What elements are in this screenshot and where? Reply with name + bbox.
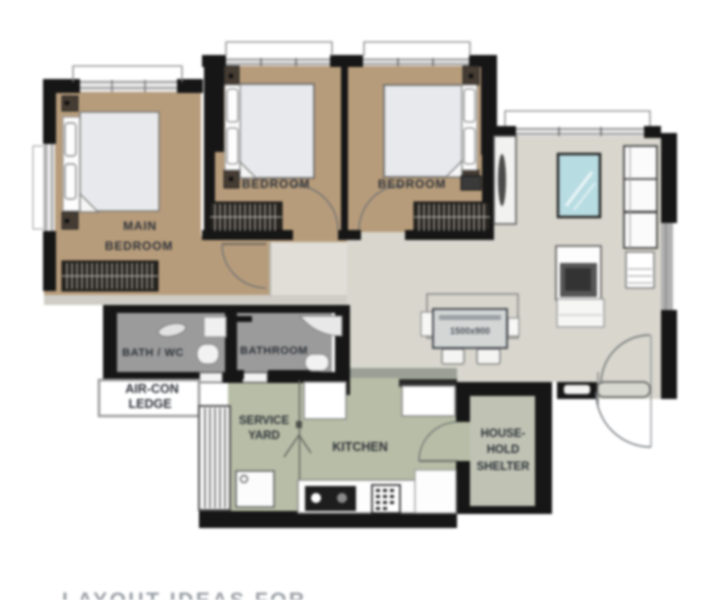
svg-text:MAIN: MAIN [123,219,157,233]
svg-text:BEDROOM: BEDROOM [105,239,173,253]
svg-text:HOLD: HOLD [487,444,520,456]
svg-text:1500x900: 1500x900 [450,326,490,336]
svg-text:LAYOUT IDEAS FOR: LAYOUT IDEAS FOR [62,589,307,600]
svg-text:HOUSE-: HOUSE- [481,428,526,440]
svg-text:AIR-CON: AIR-CON [125,382,178,396]
svg-text:SERVICE: SERVICE [239,415,290,427]
svg-text:KITCHEN: KITCHEN [332,440,388,454]
svg-text:YARD: YARD [248,430,280,442]
svg-text:BATHROOM: BATHROOM [240,345,308,357]
svg-text:SHELTER: SHELTER [477,461,531,473]
svg-text:BEDROOM: BEDROOM [378,177,446,191]
svg-text:BATH / WC: BATH / WC [122,347,184,359]
svg-text:BEDROOM: BEDROOM [242,177,310,191]
svg-text:LEDGE: LEDGE [128,397,171,411]
